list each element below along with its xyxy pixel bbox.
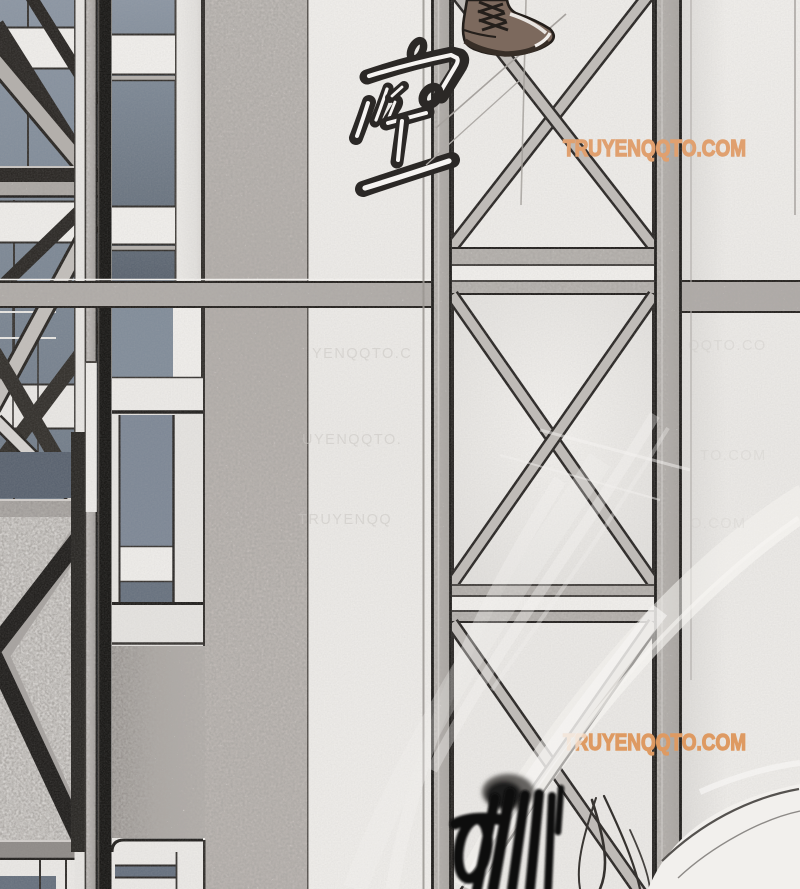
svg-text:TRUYENQQ: TRUYENQQ bbox=[298, 512, 392, 528]
svg-text:YENQQTO.C: YENQQTO.C bbox=[312, 346, 412, 362]
svg-text:QQTO.CO: QQTO.CO bbox=[688, 338, 767, 354]
svg-text:UYENQQTO.: UYENQQTO. bbox=[302, 432, 402, 448]
svg-text:O.COM: O.COM bbox=[690, 516, 747, 532]
svg-text:TRUYENQQTO.COM: TRUYENQQTO.COM bbox=[563, 729, 746, 755]
svg-text:TRUYENQQTO.COM: TRUYENQQTO.COM bbox=[563, 135, 746, 161]
svg-text:TO.COM: TO.COM bbox=[700, 448, 767, 464]
